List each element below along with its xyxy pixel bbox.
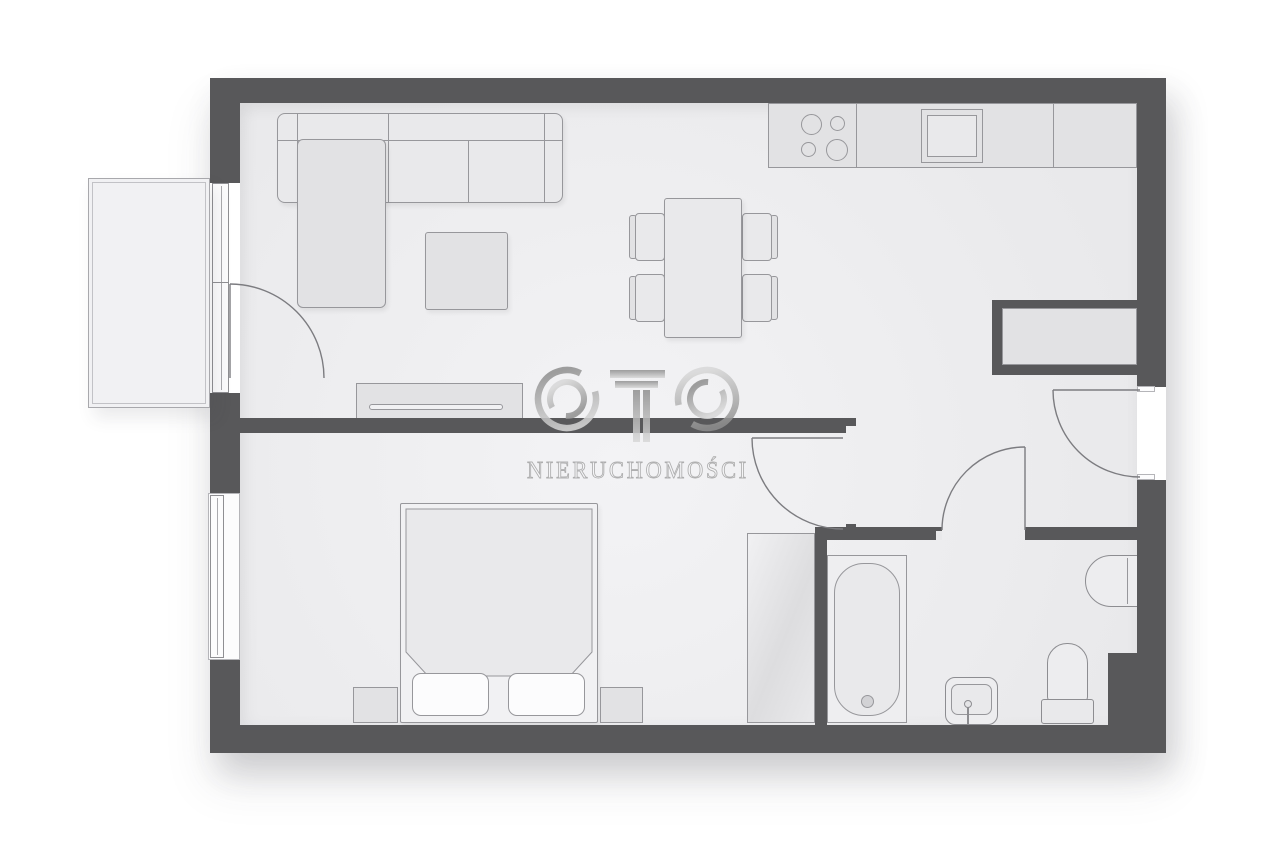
- wall-exterior-right-lower: [1137, 480, 1166, 753]
- wall-washbasin: [1085, 555, 1140, 607]
- wall-living-bedroom: [240, 418, 846, 433]
- coffee-table: [425, 232, 508, 310]
- wall-bedroom-door-jamb-top: [846, 418, 856, 426]
- wall-bathroom-north-west: [815, 527, 942, 540]
- entrance-jamb-top: [1137, 386, 1155, 392]
- bedroom-window-glass-line: [217, 498, 218, 655]
- balcony-door-window-frame: [212, 183, 229, 393]
- wall-bathroom-north-east: [1025, 527, 1137, 540]
- wall-exterior-top: [210, 78, 1166, 103]
- bed-pillow-left: [412, 673, 489, 716]
- bedroom-window-frame: [210, 495, 224, 658]
- floorplan: NIERUCHOMOŚCI: [210, 78, 1166, 753]
- wardrobe: [747, 533, 815, 723]
- built-in-niche-shelf: [1002, 308, 1137, 365]
- wall-exterior-bottom: [210, 725, 1166, 753]
- dining-chair-seat: [742, 213, 772, 261]
- wall-exterior-right-upper: [1137, 78, 1166, 387]
- cooktop-burner-small: [801, 142, 816, 157]
- cooktop-burner-large: [826, 139, 848, 161]
- sofa-cushion-seam-1: [388, 114, 389, 202]
- cooktop-burner-large: [801, 114, 822, 135]
- niche-frame-top: [992, 300, 1166, 308]
- kitchen-counter: [768, 103, 1137, 168]
- washbasin-bowl: [951, 684, 992, 715]
- entrance-jamb-bottom: [1137, 474, 1155, 480]
- tv-stand: [356, 383, 523, 420]
- canvas: { "watermark": { "logo_text": "OTO", "su…: [0, 0, 1280, 853]
- pedestal-washbasin: [945, 677, 998, 725]
- sofa-chaise-lounge: [297, 139, 386, 308]
- bathtub-basin: [834, 563, 900, 716]
- wall-exterior-left-lower: [210, 660, 240, 753]
- dining-chair-seat: [635, 213, 665, 261]
- wall-bedroom-bathroom: [815, 527, 827, 726]
- balcony-railing-line: [92, 182, 206, 404]
- counter-seam-2: [1053, 104, 1054, 167]
- wall-exterior-left-upper: [210, 78, 240, 183]
- kitchen-sink-basin: [927, 115, 977, 157]
- tv-stand-groove: [369, 404, 503, 410]
- counter-seam-1: [856, 104, 857, 167]
- dining-chair-seat: [742, 274, 772, 322]
- toilet-bowl: [1047, 643, 1088, 702]
- wall-washbasin-rim: [1127, 558, 1128, 604]
- bed-pillow-right: [508, 673, 585, 716]
- niche-frame-bottom: [992, 365, 1166, 375]
- toilet-tank: [1041, 699, 1094, 724]
- sofa-armrest-seam-right: [544, 114, 545, 202]
- wall-exterior-left-middle: [210, 393, 240, 495]
- kitchen-sink: [921, 109, 983, 163]
- balcony-window-mullion: [213, 282, 228, 283]
- dining-chair-seat: [635, 274, 665, 322]
- wall-bathroom-step: [1108, 653, 1137, 725]
- niche-frame-left: [992, 300, 1002, 375]
- balcony: [88, 178, 210, 408]
- washbasin-tap: [964, 700, 972, 708]
- cooktop-burner-small: [830, 116, 845, 131]
- bathtub: [827, 555, 907, 723]
- dining-table: [664, 198, 742, 338]
- bathtub-drain: [861, 695, 874, 708]
- balcony-window-glass-line: [221, 186, 222, 390]
- bathroom-door-jamb-notch: [936, 531, 942, 540]
- washbasin-tap-stem: [967, 707, 969, 726]
- sofa-cushion-seam-2: [468, 140, 469, 202]
- nightstand-left: [353, 687, 398, 723]
- nightstand-right: [600, 687, 643, 723]
